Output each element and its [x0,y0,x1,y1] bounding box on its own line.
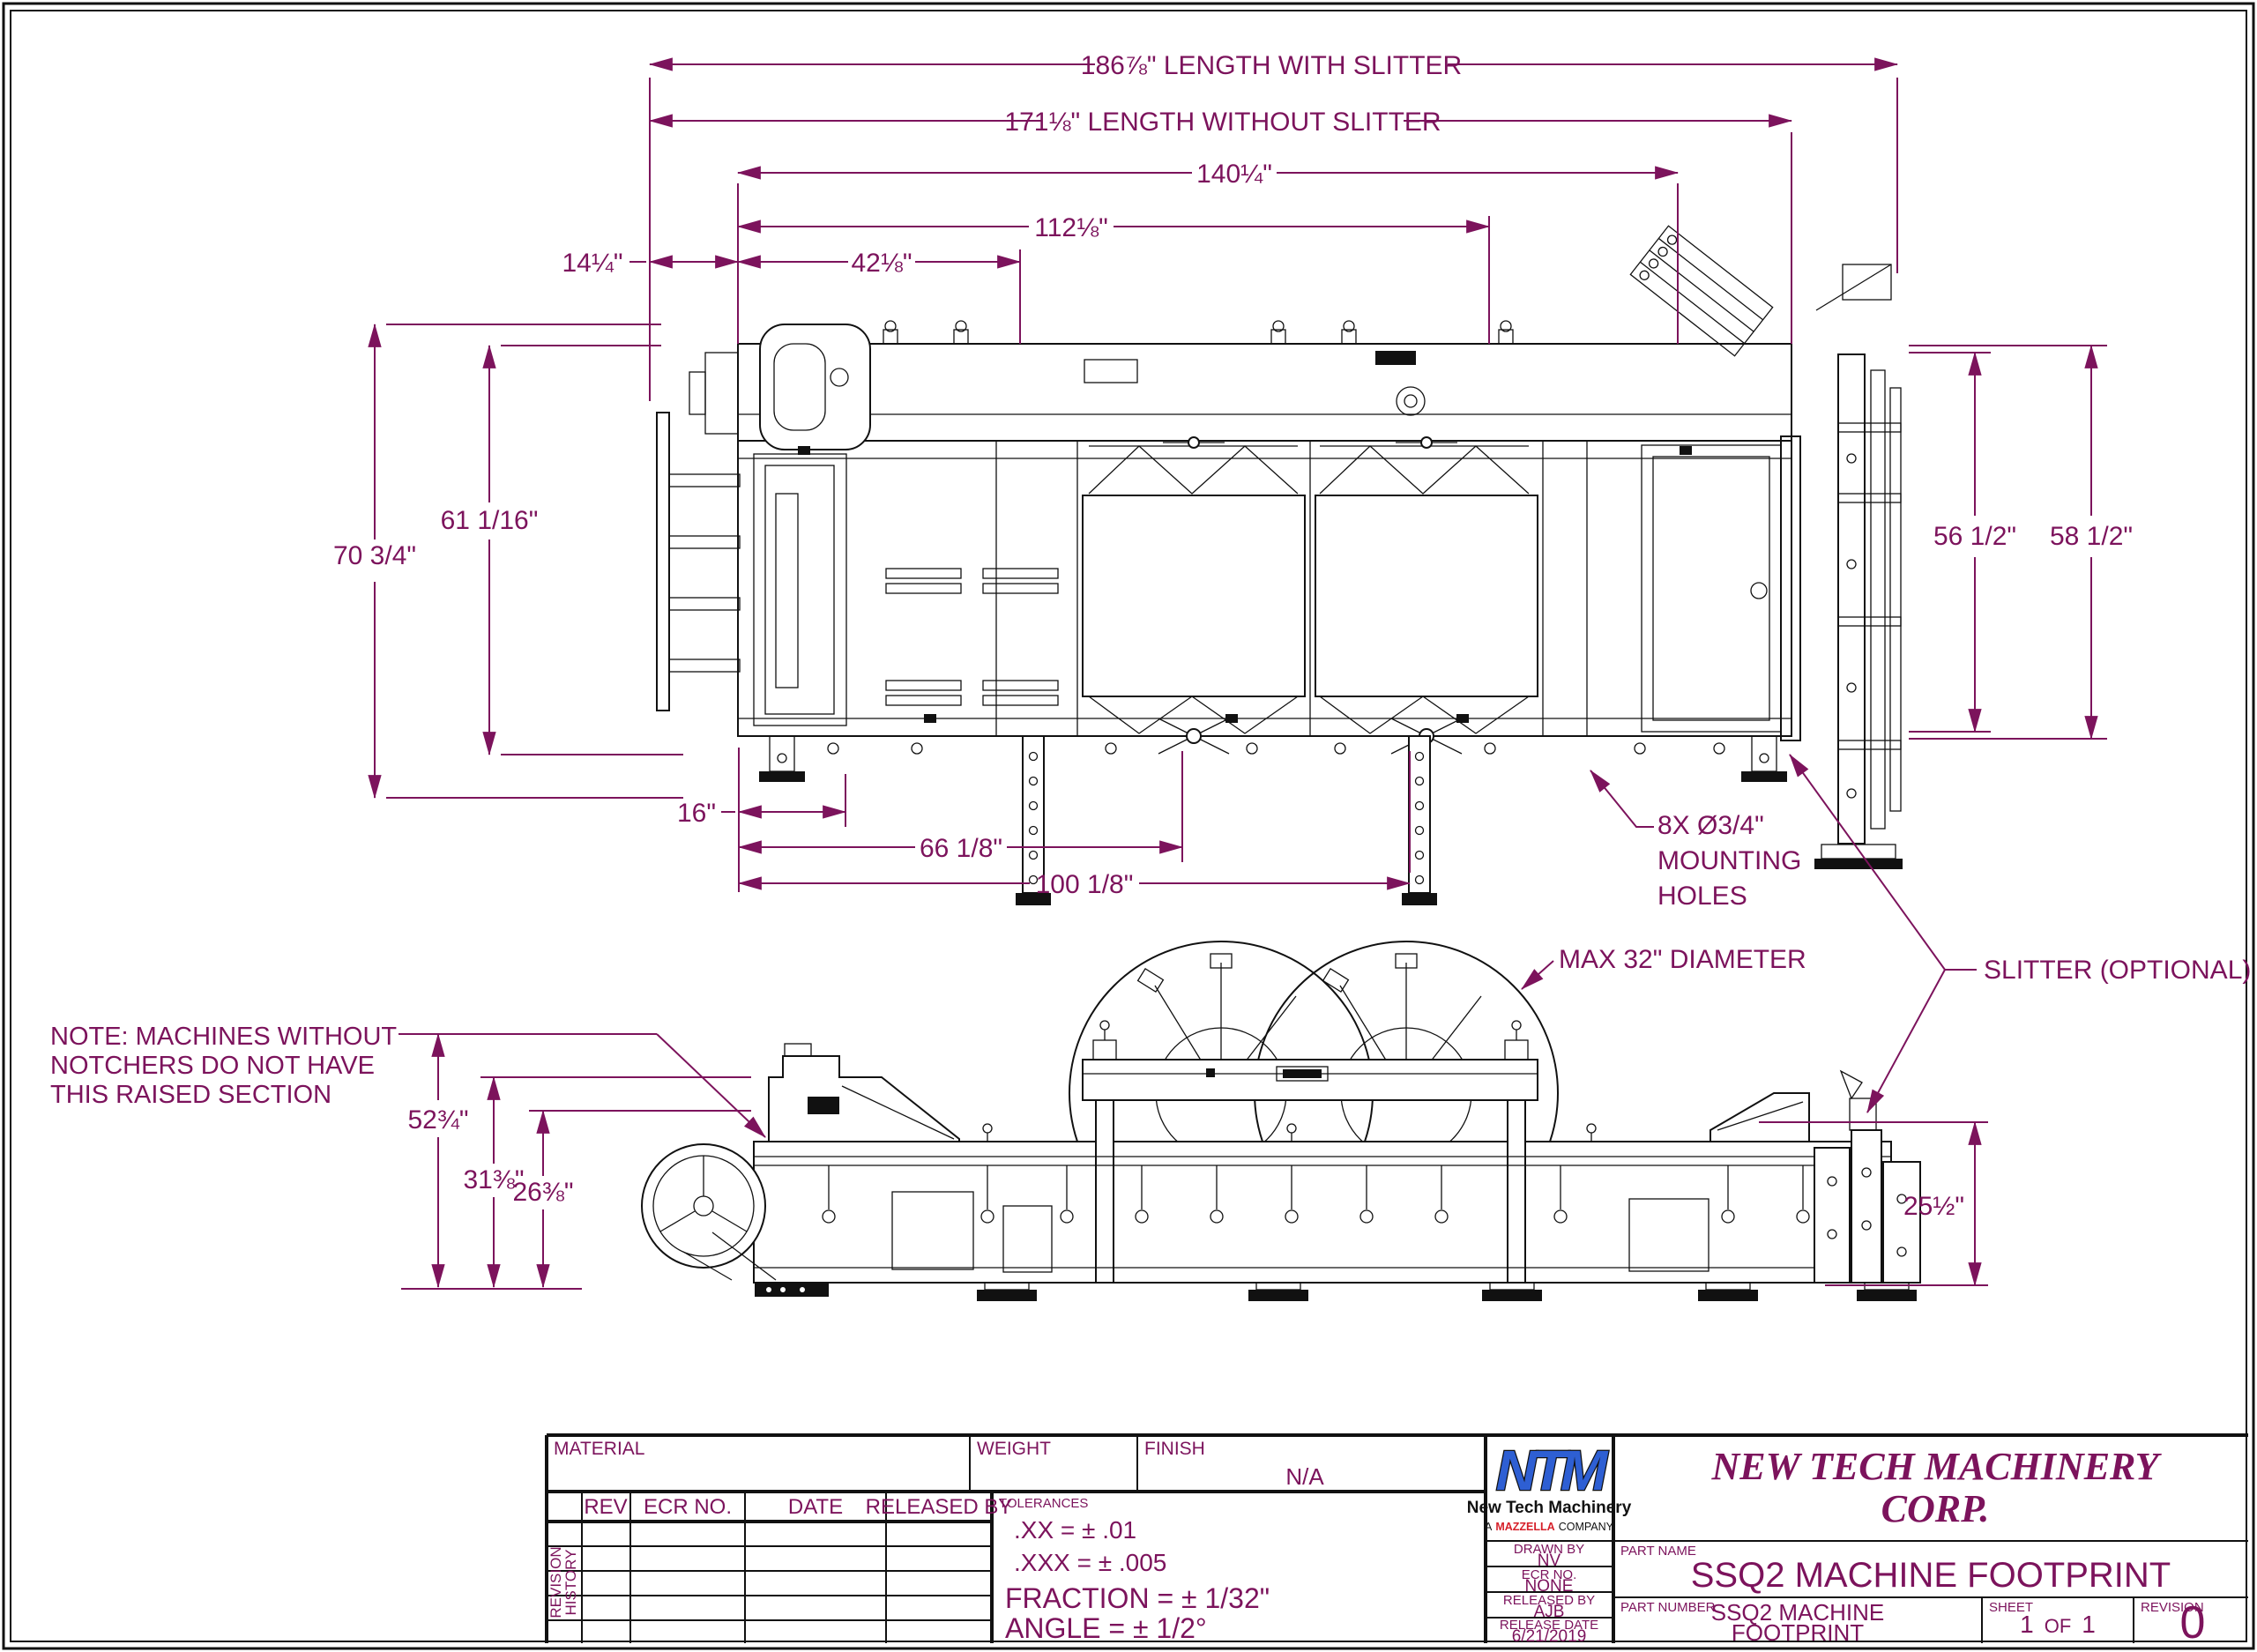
dim-100: 100 1/8" [739,870,1410,899]
entry-rack [1630,226,1772,356]
note-line3: THIS RAISED SECTION [50,1081,331,1109]
band-clamps [883,321,1513,344]
slitter-top-view [1814,264,1903,869]
material-label: MATERIAL [554,1439,644,1459]
dim-length-with-slitter: 186⅞" LENGTH WITH SLITTER [650,51,1897,80]
part-name-value: SSQ2 MACHINE FOOTPRINT [1691,1556,2171,1595]
release-date-value: 6/21/2019 [1512,1627,1587,1646]
roller-panel-right [1315,495,1538,696]
dim-70: 70 3/4" [333,324,416,798]
dim-66: 66 1/8" [739,834,1182,863]
sheet-border-outer [4,4,2253,1648]
slitter-label: SLITTER (OPTIONAL) [1984,956,2251,985]
part-number-label: PART NUMBER [1620,1600,1716,1615]
dim-52: 52¾" [407,1034,468,1287]
dim-label-58: 58 1/2" [2050,522,2133,551]
mazzella-line: AMAZZELLACOMPANY [1485,1521,1614,1533]
finish-label: FINISH [1144,1439,1205,1459]
dim-label-26: 26⅜" [512,1178,573,1207]
entry-guide [657,413,846,726]
dim-label-61: 61 1/16" [441,506,539,535]
top-view-drawing [657,226,1903,905]
revision-history-word2: HISTORY [562,1550,579,1616]
tolerance-xx: .XX = ± .01 [1014,1516,1136,1544]
dim-26: 26⅜" [512,1111,573,1287]
mounting-holes-line2: MOUNTING [1657,846,1801,875]
dim-112: 112⅛" [738,213,1489,242]
dim-length-without-slitter: 171⅛" LENGTH WITHOUT SLITTER [650,108,1791,137]
dim-140: 140¼" [738,160,1678,189]
part-name-label: PART NAME [1620,1544,1696,1559]
note-line2: NOTCHERS DO NOT HAVE [50,1052,375,1080]
drawing-sheet: 186⅞" LENGTH WITH SLITTER 171⅛" LENGTH W… [0,0,2257,1652]
tolerance-fraction: FRACTION = ± 1/32" [1005,1582,1270,1614]
max-diameter-label: MAX 32" DIAMETER [1559,945,1806,974]
max-diameter-callout: MAX 32" DIAMETER [1522,945,1806,989]
note-line1: NOTE: MACHINES WITHOUT [50,1023,397,1051]
tolerances-label: TOLERANCES [999,1496,1088,1511]
dim-label-70: 70 3/4" [333,541,416,570]
roller-panel-left [1083,495,1305,696]
dim-label-171: 171⅛" LENGTH WITHOUT SLITTER [1004,108,1441,137]
side-view-drawing [642,941,1920,1301]
dim-label-42: 42⅛" [851,249,912,278]
company-name-line1: NEW TECH MACHINERY [1711,1445,2163,1488]
title-block: MATERIAL WEIGHT FINISH N/A REVISION HIST… [547,1435,2248,1648]
dim-58: 58 1/2" [2050,346,2133,739]
machine-base [754,1142,1891,1283]
mounting-holes-line1: 8X Ø3/4" [1657,811,1764,840]
rev-header: REV [584,1495,627,1519]
dim-label-52: 52¾" [407,1105,468,1135]
ecr-no-header: ECR NO. [644,1495,732,1519]
mounting-holes-line3: HOLES [1657,882,1747,911]
raised-notcher-section [769,1044,959,1142]
dim-label-25: 25½" [1903,1192,1964,1221]
ntm-logo-name: New Tech Machinery [1467,1499,1632,1517]
mounting-holes-callout: 8X Ø3/4" MOUNTING HOLES [1590,770,1801,911]
dim-label-16: 16" [677,799,716,828]
weight-label: WEIGHT [977,1439,1051,1459]
ntm-logo-letters: NTM [1496,1439,1609,1502]
mounting-legs [759,736,1787,905]
finish-value: N/A [1285,1463,1324,1490]
dim-label-100: 100 1/8" [1036,870,1134,899]
machine-feet [755,1283,1917,1301]
dim-16: 16" [677,799,845,828]
released-by-header: RELEASED BY [866,1495,1013,1519]
dim-label-112: 112⅛" [1034,213,1108,242]
sheet-value: 1OF1 [2020,1611,2096,1638]
ntm-logo: NTM New Tech Machinery AMAZZELLACOMPANY [1467,1439,1632,1533]
uncoiler-beam [1083,1060,1538,1100]
dim-label-140: 140¼" [1196,160,1272,189]
dim-label-186: 186⅞" LENGTH WITH SLITTER [1081,51,1462,80]
motor-cover [760,324,870,450]
dim-label-14: 14¼" [562,249,622,278]
part-number-line2: FOOTPRINT [1732,1619,1864,1646]
revision-value: 0 [2180,1597,2206,1648]
deck-brackets [886,569,1058,705]
dim-label-56: 56 1/2" [1933,522,2016,551]
tolerance-xxx: .XXX = ± .005 [1014,1549,1166,1576]
dim-42: 42⅛" [738,249,1020,278]
date-header: DATE [788,1495,843,1519]
dim-61: 61 1/16" [441,346,539,755]
dim-56: 56 1/2" [1933,353,2016,732]
tolerance-angle: ANGLE = ± 1/2° [1005,1612,1207,1644]
company-name-line2: CORP. [1881,1487,1990,1530]
dim-label-66: 66 1/8" [920,834,1002,863]
sheet-border-inner [11,11,2246,1641]
